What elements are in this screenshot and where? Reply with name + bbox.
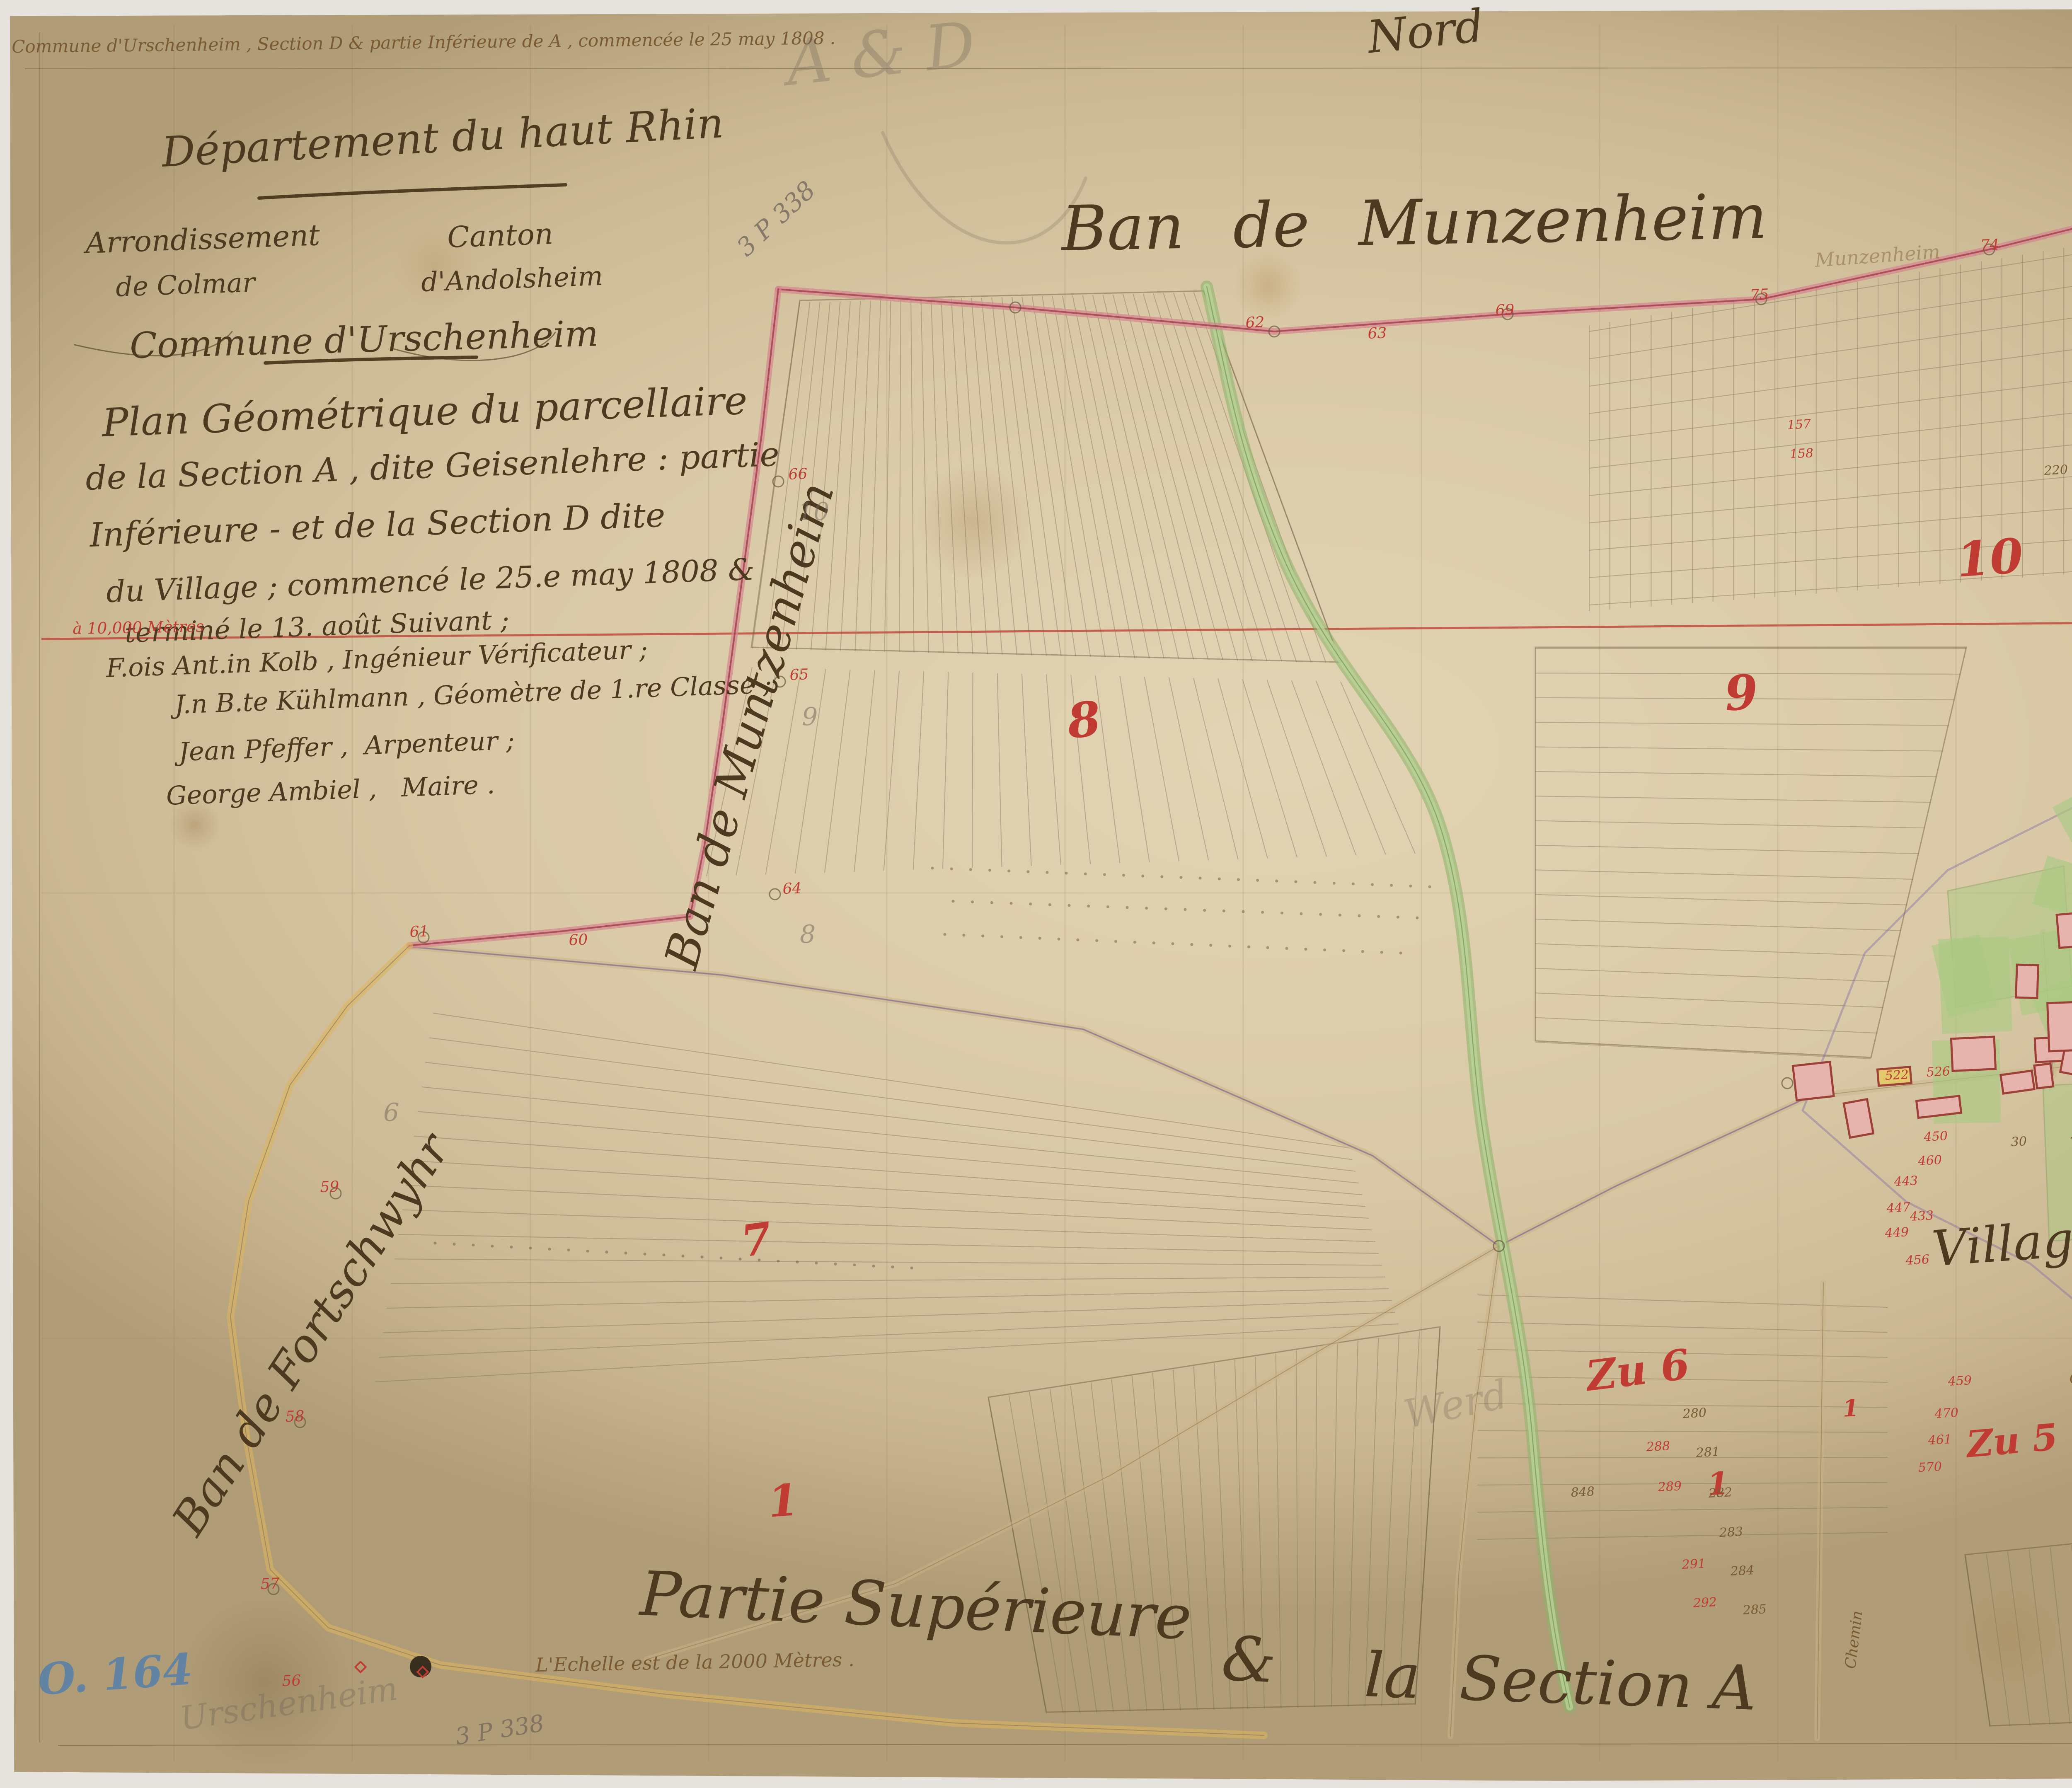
parcel-number: 450 [1924,1130,1948,1144]
title-line-7: J.n B.te Kühlmann , Géomètre de 1.re Cla… [174,671,772,718]
department-title: Département du haut Rhin [161,102,725,173]
boundary-point-number: 69 [1495,302,1515,318]
boundary-point-number: 60 [569,932,588,948]
boundary-point-number: 61 [409,924,429,940]
title-line-4: du Village ; commencé le 25.e may 1808 & [106,554,755,607]
boundary-point-number: 65 [789,667,809,683]
scale-note: L'Echelle est de la 2000 Mètres . [535,1650,854,1674]
pencil-note: A & D [783,13,978,95]
zone-number: 7 [738,1216,775,1263]
parcel-number: 461 [1928,1433,1952,1447]
partie-superieure-section-a: la Section A [1363,1644,1757,1719]
road-label: Munzenheim [1814,242,1941,270]
parcel-number: 288 [1646,1440,1670,1454]
boundary-point-number: 59 [320,1179,339,1195]
parcel-number: 284 [1730,1564,1755,1578]
boundary-point-number: 58 [285,1409,305,1425]
boundary-point-number: 74 [1980,237,1999,253]
parcel-number: 283 [1719,1526,1743,1539]
title-line-3: Inférieure - et de la Section D dite [89,499,666,552]
road-label: Chemin [2069,1367,2072,1386]
zone-number: 1 [1842,1396,1859,1420]
boundary-point-number: 66 [788,467,808,482]
title-line-9: George Ambiel , Maire . [166,772,495,809]
canton-label: Canton [447,219,554,252]
partie-superieure-amp: & [1220,1628,1278,1692]
boundary-point-number: 62 [1245,315,1265,331]
parcel-number: 848 [1571,1486,1595,1499]
title-line-8: Jean Pfeffer , Arpenteur ; [178,728,515,765]
zone-number: Zu 5 [1965,1418,2059,1463]
blue-archive-number: O. 164 [36,1648,194,1701]
arrondissement-value: de Colmar [115,269,256,301]
boundary-point-number: 63 [1368,326,1387,341]
parcel-number: 281 [1696,1446,1720,1459]
pencil-note: 6 [383,1100,399,1125]
ban-fortschwyhr-label: Ban de Fortschwyhr [165,1127,457,1542]
zone-number: Zu 6 [1584,1343,1692,1397]
boundary-point-number: 75 [1750,287,1769,303]
parcel-number: 30 [2011,1135,2027,1149]
parcel-number: 447 [1886,1201,1911,1215]
partie-superieure-label: Partie Supérieure [639,1563,1193,1648]
parcel-number: 459 [1948,1374,1972,1388]
boundary-point-number: 57 [260,1576,280,1592]
title-line-2: de la Section A , dite Geisenlehre : par… [85,438,780,495]
parcel-number: 522 [1885,1069,1909,1082]
parcel-number: 449 [1885,1226,1909,1240]
parcel-number: 443 [1894,1175,1918,1188]
parcel-number: 456 [1905,1253,1930,1267]
north-label: Nord [1365,4,1486,60]
parcel-number: 282 [1708,1486,1733,1500]
zone-number: 9 [1723,668,1760,718]
parcel-number: 291 [1682,1558,1706,1571]
cadastral-map-sheet: Commune d'Urschenheim , Section D & part… [0,0,2072,1788]
parcel-number: 470 [1934,1407,1959,1420]
village-label: Village [1930,1212,2072,1273]
canton-value: d'Andolsheim [421,263,603,296]
boundary-point-number: 56 [282,1673,301,1689]
pencil-note: 9 [802,704,818,729]
pencil-note: 8 [800,922,816,947]
ban-munzenheim-top-label: Ban de Munzenheim [1061,186,1768,260]
pencil-note: 3 P 338 [454,1712,546,1749]
parcel-number: 460 [1918,1154,1942,1168]
pencil-note: Werd [1401,1375,1511,1435]
road-label: Chemin [1843,1610,1865,1669]
parcel-number: 220 [2044,464,2068,477]
zone-number: 8 [1065,695,1103,746]
parcel-number: 292 [1693,1596,1717,1610]
zone-number: 1 [767,1478,800,1524]
commune-title: Commune d'Urschenheim [129,316,599,364]
parcel-number: 289 [1658,1480,1682,1494]
parcel-number: 570 [1918,1461,1942,1474]
red-line-label-left: à 10,000 Mètres [73,618,204,636]
zone-number: 10 [1955,532,2025,584]
parcel-number: 280 [1682,1407,1707,1420]
label-layer: Commune d'Urschenheim , Section D & part… [0,0,2072,1788]
pencil-note: 3 P 338 [733,177,820,261]
arrondissement-label: Arrondissement [85,220,320,258]
road-label: Terre [2070,1135,2072,1149]
title-line-1: Plan Géométrique du parcellaire [102,382,748,443]
parcel-number: 526 [1926,1065,1951,1079]
corner-note: Commune d'Urschenheim , Section D & part… [12,29,835,56]
parcel-number: 285 [1743,1603,1767,1617]
parcel-number: 158 [1789,447,1814,461]
parcel-number: 157 [1787,418,1811,432]
parcel-number: 433 [1910,1210,1934,1223]
boundary-point-number: 64 [782,881,802,897]
pencil-note: 10 [798,499,829,524]
